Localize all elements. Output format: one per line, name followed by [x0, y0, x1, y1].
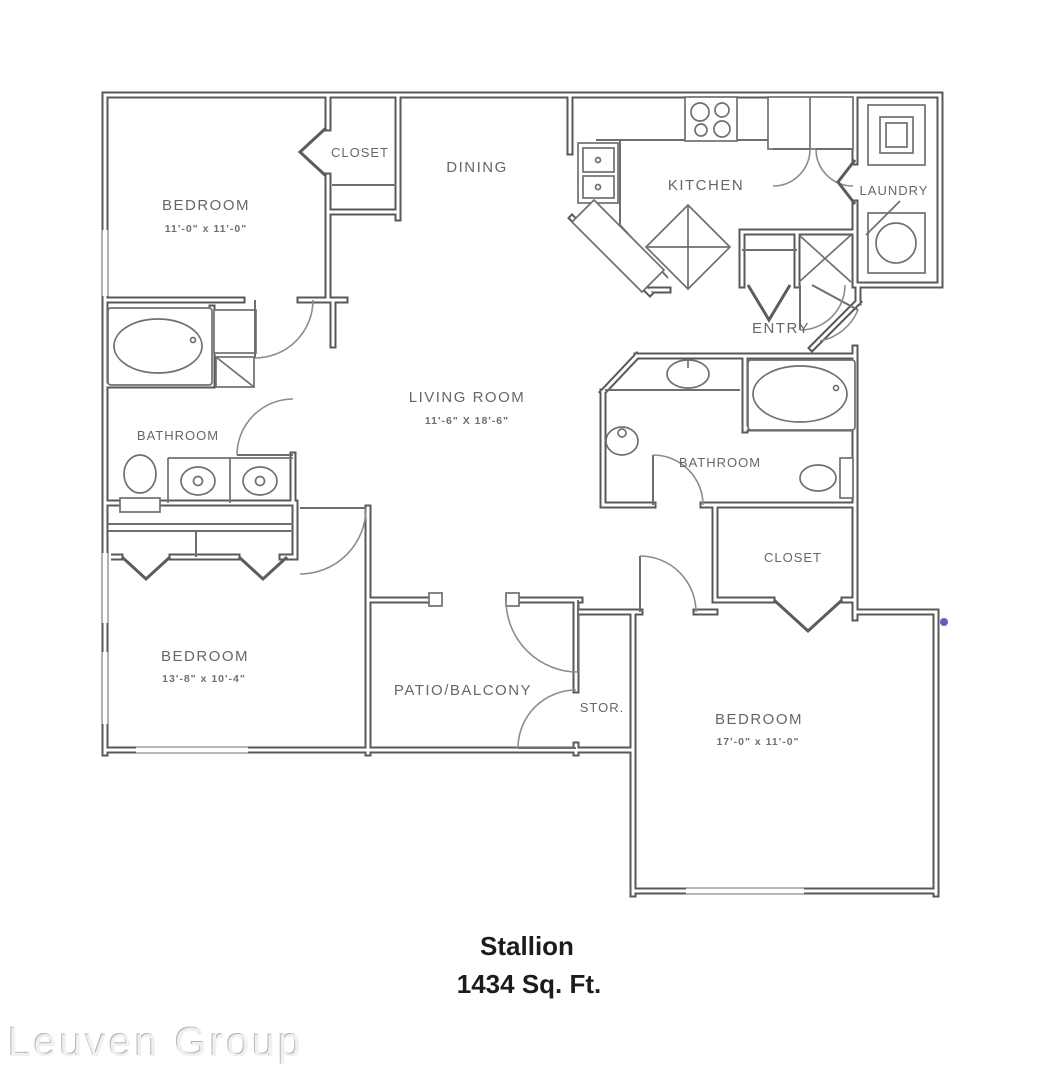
room-dims-bedroom-3: 17'-0" x 11'-0" — [716, 736, 799, 748]
watermark: Leuven Group — [8, 1019, 304, 1066]
room-label-closet-1: CLOSET — [331, 145, 389, 160]
bathtub-2-icon — [748, 360, 855, 430]
room-label-dining: DINING — [446, 159, 508, 176]
linen-closet-icon — [214, 310, 256, 387]
toilet-1-icon — [120, 455, 160, 512]
water-heater-icon — [799, 235, 851, 282]
coat-closet-bifold-icon — [748, 285, 790, 320]
dryer-icon — [866, 201, 925, 273]
room-label-bathroom-1: BATHROOM — [137, 428, 219, 443]
pantry-icon — [768, 97, 853, 186]
room-label-bathroom-2: BATHROOM — [679, 455, 761, 470]
kitchen-sink-icon — [578, 143, 618, 203]
washer-icon — [868, 105, 925, 165]
kitchen-island-icon — [572, 200, 730, 292]
room-label-laundry: LAUNDRY — [860, 183, 929, 198]
plan-area: 1434 Sq. Ft. — [457, 969, 602, 999]
room-label-living-room: LIVING ROOM — [409, 389, 526, 406]
closet2-bifold-icon — [774, 600, 842, 631]
room-dims-bedroom-2: 13'-8" x 10'-4" — [162, 673, 246, 685]
floor-plan-drawing: BEDROOM 11'-0" x 11'-0" CLOSET DINING KI… — [0, 0, 1058, 1080]
room-label-closet-2: CLOSET — [764, 550, 822, 565]
room-dims-living-room: 11'-6" X 18'-6" — [425, 415, 509, 427]
patio-door-frame-right — [506, 593, 519, 606]
room-label-storage: STOR. — [580, 700, 625, 715]
laundry-bifold-icon — [838, 160, 855, 204]
bedroom2-closet-bifold-left-icon — [122, 557, 170, 579]
room-label-bedroom-1: BEDROOM — [162, 197, 250, 214]
patio-door-frame-left — [429, 593, 442, 606]
stove-icon — [685, 97, 737, 141]
room-label-patio: PATIO/BALCONY — [394, 682, 532, 699]
fixtures-layer — [108, 97, 925, 512]
room-label-bedroom-3: BEDROOM — [715, 711, 803, 728]
bathtub-1-icon — [108, 308, 212, 385]
room-label-entry: ENTRY — [752, 320, 810, 337]
room-label-bedroom-2: BEDROOM — [161, 648, 249, 665]
floor-plan-page: BEDROOM 11'-0" x 11'-0" CLOSET DINING KI… — [0, 0, 1058, 1080]
toilet-2-icon — [800, 458, 853, 498]
sink-pedestal-icon — [606, 427, 638, 455]
room-label-kitchen: KITCHEN — [668, 177, 744, 194]
scan-artifact-dot — [940, 618, 948, 626]
room-dims-bedroom-1: 11'-0" x 11'-0" — [165, 223, 248, 235]
plan-title: Stallion — [480, 931, 574, 961]
vanity-1-icon — [168, 458, 293, 503]
closet1-bifold-icon — [300, 128, 326, 176]
sink-counter-icon — [667, 360, 709, 388]
